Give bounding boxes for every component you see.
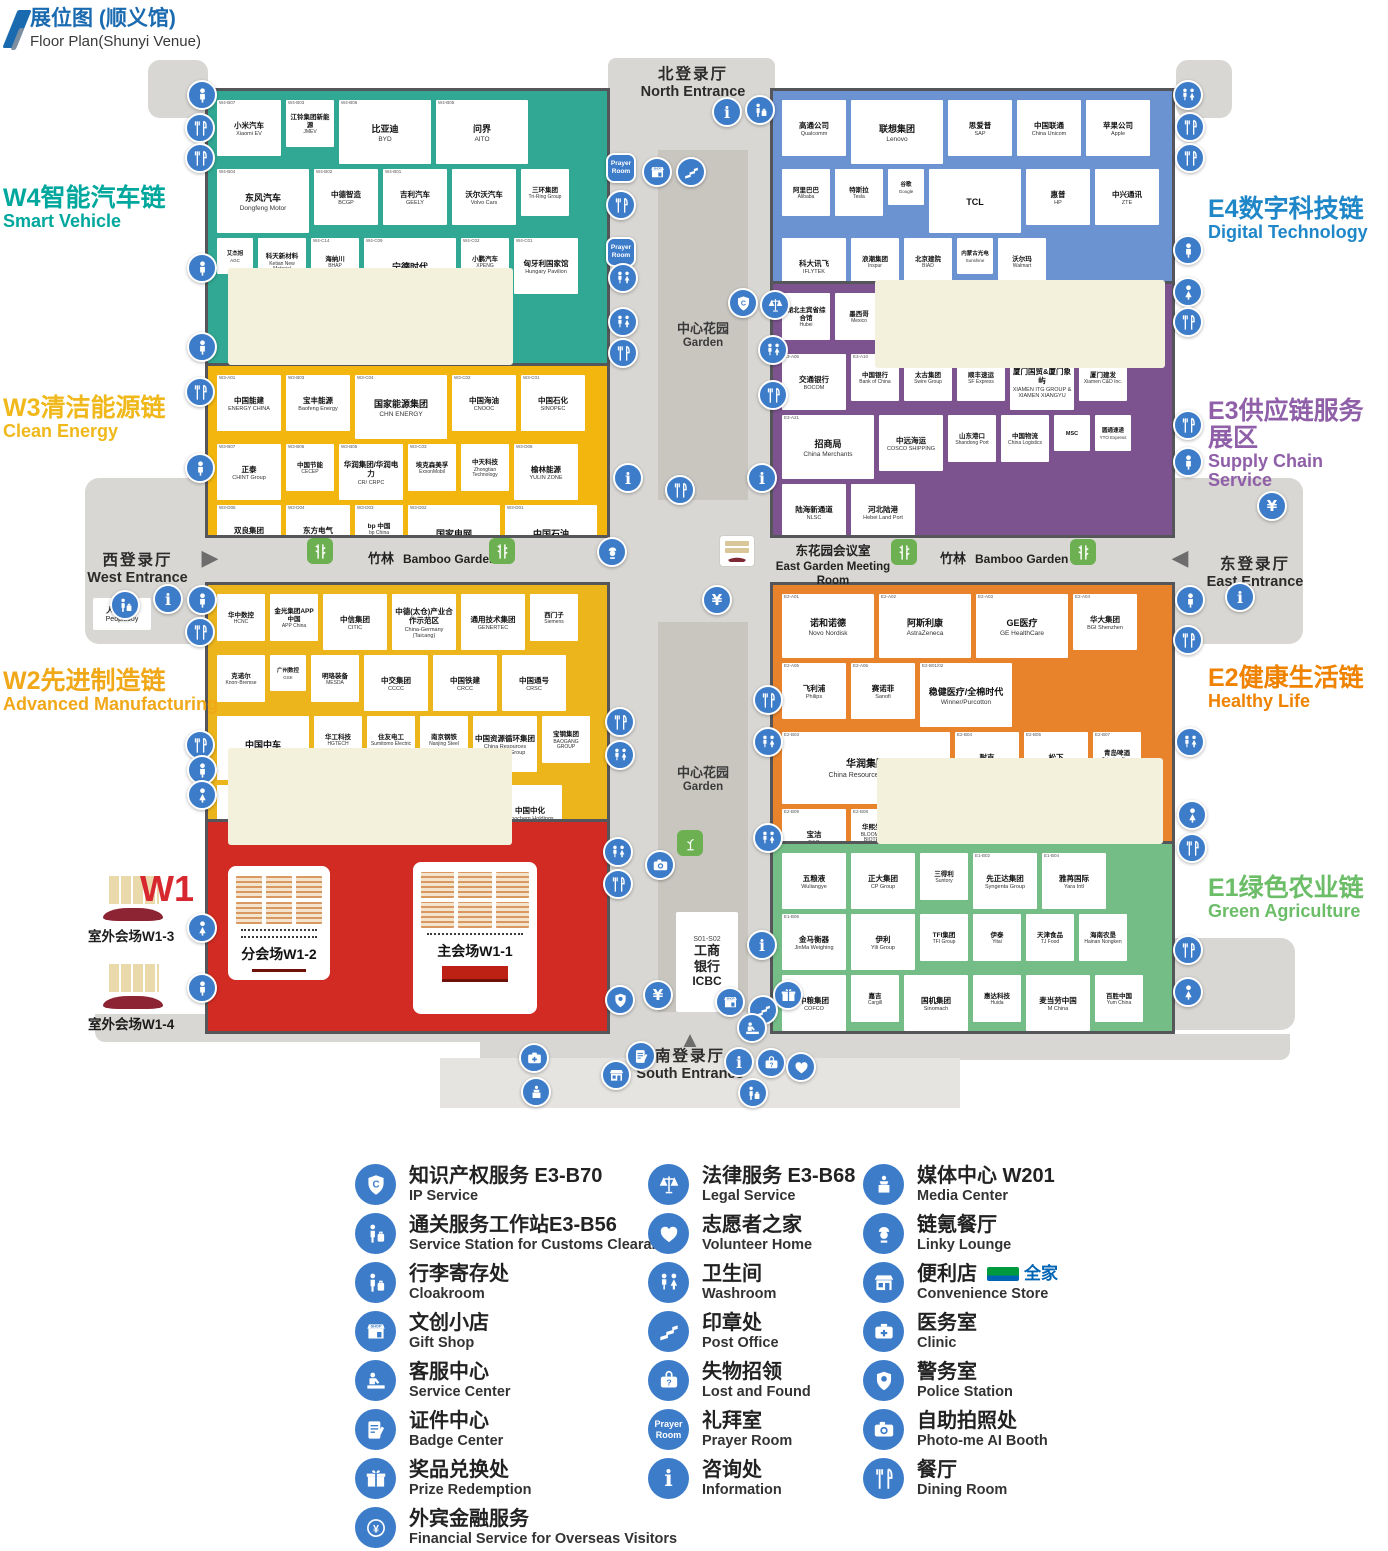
- legend-item-clinic: 医务室Clinic: [863, 1307, 1058, 1356]
- booth-e2-b09: E2-B09宝洁P&G: [782, 809, 846, 844]
- tree-icon: [891, 539, 917, 565]
- legend-item-camera: 自助拍照处Photo-me AI Booth: [863, 1405, 1058, 1454]
- booth-w3-d05: W3-D05双良集团Shuangliang: [217, 505, 281, 538]
- booth-w3-c02: W3-C02中国海油CNOOC: [452, 375, 516, 431]
- booth-iflytek: 科大讯飞IFLYTEK: [782, 238, 846, 284]
- info-icon: i: [613, 463, 643, 493]
- yen-icon: ¥: [702, 585, 732, 615]
- info-icon: i: [747, 463, 777, 493]
- zone-label-e2: E2健康生活链Healthy Life: [1208, 665, 1364, 711]
- booth-yili-group: 伊利Yili Group: [851, 914, 915, 970]
- booth-cp-group: 正大集团CP Group: [851, 853, 915, 909]
- info-icon: i: [724, 1047, 754, 1077]
- booth-w4-b03: W4-B03江铃集团新能源JMEV: [286, 100, 334, 147]
- woman-icon: [187, 913, 217, 943]
- cloakroom-icon: [738, 1078, 768, 1108]
- zone-label-e3: E3供应链服务展区Supply Chain Service: [1208, 398, 1388, 491]
- booth-e2-a01: E2-A01诺和诺德Novo Nordisk: [782, 594, 874, 658]
- garden-label-south: 中心花园Garden: [658, 762, 748, 793]
- arrow-right-icon: ▶: [195, 543, 225, 573]
- washroom-icon: [608, 263, 638, 293]
- zone-label-w3: W3清洁能源链Clean Energy: [3, 395, 166, 441]
- info-icon: i: [747, 930, 777, 960]
- booth-hebei-land-port: 河北陆港Hebei Land Port: [851, 484, 915, 538]
- person-icon: [187, 973, 217, 1003]
- booth-w4-b04: W4-B04东风汽车Dongfeng Motor: [217, 169, 309, 233]
- service-icon: [737, 1013, 767, 1043]
- bush-icon: [677, 830, 703, 856]
- linky-icon: [863, 1213, 904, 1254]
- booth-baogang-group: 宝钢集团BAOGANG GROUP: [542, 716, 590, 763]
- clinic-icon: [519, 1043, 549, 1073]
- dining-icon: [753, 685, 783, 715]
- zone-label-w2: W2先进制造链Advanced Manufacturing: [3, 668, 218, 714]
- arrow-left-icon: ◀: [1165, 543, 1195, 573]
- booth-e3-a06: E3-A06交通银行BOCOM: [782, 354, 846, 410]
- meeting-block-w2: [228, 748, 512, 845]
- person-icon: [187, 253, 217, 283]
- outdoor-awning-icon: [103, 996, 163, 1009]
- booth-yto-express: 圆通速递YTO Express: [1095, 415, 1131, 451]
- legend-item-media: 媒体中心 W201Media Center: [863, 1160, 1058, 1209]
- booth-e2-a06: E2-A06赛诺菲Sanofi: [851, 663, 915, 719]
- familymart-logo: 全家: [987, 1264, 1058, 1284]
- booth-w4-b02: W4-B02中德智造BCGP: [314, 169, 378, 225]
- page-title: 展位图 (顺义馆): [30, 6, 201, 31]
- legend-item-service: 客服中心Service Center: [355, 1356, 677, 1405]
- booth-huida: 惠达科技Huida: [973, 975, 1021, 1022]
- post-icon: [648, 1311, 689, 1352]
- legend-item-dining: 餐厅Dining Room: [863, 1454, 1058, 1503]
- east-entrance-label: 东登录厅East Entrance: [1170, 552, 1340, 590]
- booth-sunshine: 内蒙古光电Sunshine: [957, 238, 993, 274]
- booth-yum-china: 百胜中国Yum China: [1095, 975, 1143, 1022]
- dining-icon: [185, 143, 215, 173]
- main-venue-w1-1: 主会场W1-1: [413, 862, 537, 1014]
- media-icon: [521, 1077, 551, 1107]
- booth-w3-d06: W3-D06榆林能源YULIN ZONE: [514, 444, 578, 500]
- booth-china-germany-taicang-: 中德(太仓)产业合作示范区China-Germany (Taicang): [392, 594, 456, 650]
- dining-icon: [1173, 625, 1203, 655]
- page-header: 展位图 (顺义馆) Floor Plan(Shunyi Venue): [10, 6, 201, 50]
- washroom-icon: [753, 727, 783, 757]
- shop-icon: SHOP: [642, 157, 672, 187]
- legend-item-lost: ?失物招领Lost and Found: [648, 1356, 855, 1405]
- washroom-icon: [608, 307, 638, 337]
- booth-apple: 苹果公司Apple: [1086, 100, 1150, 156]
- lost-icon: ?: [756, 1048, 786, 1078]
- booth-w4-b01: W4-B01吉利汽车GEELY: [383, 169, 447, 225]
- booth-cccc: 中交集团CCCC: [364, 655, 428, 711]
- east-garden-meeting-room-label: 东花园会议室East Garden Meeting Room: [758, 544, 908, 588]
- legend-item-badge: 证件中心Badge Center: [355, 1405, 677, 1454]
- dining-icon: [1173, 307, 1203, 337]
- outdoor-awning-icon: [103, 908, 163, 921]
- dining-icon: [608, 338, 638, 368]
- booth-tri-ring-group: 三环集团Tri-Ring Group: [521, 169, 569, 216]
- booth-china-logistics: 中国物流China Logistics: [1001, 415, 1049, 462]
- booth-sinomach: 国机集团Sinomach: [904, 975, 968, 1031]
- info-icon: i: [153, 584, 183, 614]
- police-icon: [605, 985, 635, 1015]
- svg-text:C: C: [372, 1179, 379, 1190]
- seat-grid: [236, 876, 322, 924]
- prize-icon: [355, 1458, 396, 1499]
- shop-icon: SHOP: [355, 1311, 396, 1352]
- clinic-icon: [863, 1311, 904, 1352]
- sub-venue-w1-2: 分会场W1-2: [228, 866, 330, 980]
- washroom-icon: [605, 740, 635, 770]
- booth-genertec: 通用技术集团GENERTEC: [461, 594, 525, 650]
- meeting-block-e2: [877, 758, 1163, 844]
- booth-citic: 中信集团CITIC: [323, 594, 387, 650]
- booth-china-unicom: 中国联通China Unicom: [1017, 100, 1081, 156]
- post-icon: [676, 157, 706, 187]
- woman-icon: [1173, 277, 1203, 307]
- washroom-icon: [1173, 80, 1203, 110]
- cloakroom-icon: [110, 590, 140, 620]
- booth-e1-b04: E1-B04雅苒国际Yara Intl: [1042, 853, 1106, 909]
- booth-cosco-shipping: 中远海运COSCO SHIPPING: [879, 415, 943, 471]
- booth-e2-a03: E2-A03GE医疗GE HealthCare: [976, 594, 1068, 658]
- volunteer-icon: [786, 1052, 816, 1082]
- booth-w4-c01: W4-C01匈牙利国家馆Hungary Pavilion: [514, 238, 578, 294]
- svg-text:¥: ¥: [372, 1523, 378, 1535]
- booth-e3-a21: E3-A21招商局China Merchants: [782, 415, 874, 479]
- meeting-block-w4: [228, 268, 513, 365]
- legend-item-customs: 通关服务工作站E3-B56Service Station for Customs…: [355, 1209, 677, 1258]
- customs-icon: [355, 1213, 396, 1254]
- arrow-up-icon: ▲: [675, 1025, 705, 1055]
- bamboo-garden-label-west: 竹林Bamboo Garden: [368, 548, 496, 567]
- booth-gsk: 广州数控GSK: [270, 655, 306, 691]
- booth-e2-a02: E2-A02阿斯利康AstraZeneca: [879, 594, 971, 658]
- legend-column-2: 法律服务 E3-B68Legal Service志愿者之家Volunteer H…: [648, 1160, 855, 1503]
- linky-icon: [597, 537, 627, 567]
- booth-w3-c01: W3-C01中国石化SINOPEC: [521, 375, 585, 431]
- stage: [442, 966, 509, 982]
- svg-text:SHOP: SHOP: [370, 1323, 381, 1328]
- dining-icon: [185, 617, 215, 647]
- convenience-icon: [601, 1060, 631, 1090]
- booth-biad: 北京建院BIAD: [904, 238, 952, 284]
- booth-zhongtian-technology: 中天科技Zhongtian Technology: [461, 444, 509, 491]
- outdoor-tables-icon: [108, 963, 160, 993]
- booth-volvo-cars: 沃尔沃汽车Volvo Cars: [452, 169, 516, 225]
- hall-e4: 高通公司Qualcomm联想集团Lenovo思爱普SAP中国联通China Un…: [770, 88, 1175, 284]
- booth-wuliangye: 五粮液Wuliangye: [782, 853, 846, 909]
- shop-icon: SHOP: [715, 987, 745, 1017]
- booth-tfi-group: TFI集团TFI Group: [920, 914, 968, 961]
- person-icon: [187, 80, 217, 110]
- washroom-icon: [648, 1262, 689, 1303]
- booth-w3-b07: W3-B07正泰CHINT Group: [217, 444, 281, 500]
- stage: [252, 969, 305, 972]
- booth-walmart: 沃尔玛Walmart: [998, 238, 1046, 284]
- yen-icon: ¥: [1257, 491, 1287, 521]
- booth-w3-d04: W3-D04东方电气DEC: [286, 505, 350, 538]
- hall-w3: W3-A01中国能建ENERGY CHINAW3-B03宝丰能源Baofeng …: [205, 366, 610, 538]
- main-venue-label: 主会场W1-1: [437, 941, 512, 961]
- booth-suntory: 三得利Suntory: [920, 853, 968, 900]
- dining-icon: [606, 190, 636, 220]
- booth-w3-d03: W3-D03bp 中国bp China: [355, 505, 403, 538]
- meeting-block-e3: [875, 280, 1165, 368]
- booth-crcc: 中国铁建CRCC: [433, 655, 497, 711]
- svg-text:C: C: [740, 299, 745, 307]
- svg-text:SHOP: SHOP: [653, 166, 661, 170]
- booth-shandong-port: 山东港口Shandong Port: [948, 415, 996, 462]
- booth-sap: 思爱普SAP: [948, 100, 1012, 156]
- person-icon: [1173, 447, 1203, 477]
- booth-tcl: TCL: [929, 169, 1021, 233]
- woman-icon: [187, 780, 217, 810]
- washroom-icon: [753, 823, 783, 853]
- booth-inspur: 浪潮集团Inspur: [851, 238, 899, 284]
- booth-lenovo: 联想集团Lenovo: [851, 100, 943, 164]
- booth-w3-b03: W3-B03宝丰能源Baofeng Energy: [286, 375, 350, 431]
- dining-icon: [185, 113, 215, 143]
- booth-knorr-bremse: 克诺尔Knorr-Bremse: [217, 655, 265, 702]
- dining-icon: [185, 377, 215, 407]
- badge-icon: [626, 1041, 656, 1071]
- dining-icon: [1173, 410, 1203, 440]
- washroom-icon: [758, 335, 788, 365]
- legend-item-shop: SHOP文创小店Gift Shop: [355, 1307, 677, 1356]
- north-entrance-label: 北登录厅North Entrance: [613, 62, 773, 100]
- person-icon: [187, 585, 217, 615]
- legend-item-washroom: 卫生间Washroom: [648, 1258, 855, 1307]
- badge-icon: [355, 1409, 396, 1450]
- booth-zte: 中兴通讯ZTE: [1095, 169, 1159, 225]
- dining-icon: [758, 380, 788, 410]
- seat-grid: [421, 872, 529, 928]
- booth-nlsc: 陆海新通道NLSC: [782, 484, 846, 538]
- booth-msc: MSC: [1054, 415, 1090, 451]
- person-icon: [187, 332, 217, 362]
- yen-icon: ¥: [643, 980, 673, 1010]
- legend-item-convenience: 便利店全家Convenience Store: [863, 1258, 1058, 1307]
- ip-icon: C: [728, 288, 758, 318]
- legal-icon: [760, 290, 790, 320]
- booth-app-china: 金光集团APP中国APP China: [270, 594, 318, 641]
- camera-icon: [863, 1409, 904, 1450]
- booth-siemens: 西门子Siemens: [530, 594, 578, 641]
- zone-label-w4: W4智能汽车链Smart Vehicle: [3, 185, 166, 231]
- service-icon: [355, 1360, 396, 1401]
- dining-icon: [1175, 112, 1205, 142]
- page-subtitle: Floor Plan(Shunyi Venue): [30, 33, 201, 50]
- woman-icon: [1177, 800, 1207, 830]
- svg-text:?: ?: [769, 1061, 773, 1068]
- booth-e2-b01-02: E2-B01/02稳健医疗/全棉时代Winner/Purcotton: [920, 663, 1012, 727]
- legend-item-prayer: PrayerRoom礼拜室Prayer Room: [648, 1405, 855, 1454]
- volunteer-icon: [648, 1213, 689, 1254]
- booth-crsc: 中国通号CRSC: [502, 655, 566, 711]
- legend-item-police: 警务室Police Station: [863, 1356, 1058, 1405]
- dining-icon: [603, 869, 633, 899]
- cloakroom-icon: [355, 1262, 396, 1303]
- tree-icon: [307, 538, 333, 564]
- zone-label-e4: E4数字科技链Digital Technology: [1208, 196, 1368, 242]
- booth-mesda: 明珞装备MESDA: [311, 655, 359, 702]
- booth-qualcomm: 高通公司Qualcomm: [782, 100, 846, 156]
- booth-w3-c04: W3-C04国家能源集团CHN ENERGY: [355, 375, 447, 439]
- floor-plan-page: 展位图 (顺义馆) Floor Plan(Shunyi Venue) W4-B0…: [0, 0, 1388, 1551]
- booth-w4-b06: W4-B06比亚迪BYD: [339, 100, 431, 164]
- booth-w4-b07: W4-B07小米汽车Xiaomi EV: [217, 100, 281, 156]
- lost-icon: ?: [648, 1360, 689, 1401]
- legend-item-info: i咨询处Information: [648, 1454, 855, 1503]
- bamboo-garden-label-east: 竹林Bamboo Garden: [940, 548, 1068, 567]
- media-icon: [863, 1164, 904, 1205]
- booth-cargill: 嘉吉Cargill: [851, 975, 899, 1022]
- woman-icon: [1173, 977, 1203, 1007]
- booth-w4-b05: W4-B05问界AITO: [436, 100, 528, 164]
- booth-alibaba: 阿里巴巴Alibaba: [782, 169, 830, 216]
- logo-slash-icon: [10, 6, 20, 50]
- person-icon: [185, 453, 215, 483]
- booth-w3-c03: W3-C03埃克森美孚ExxonMobil: [408, 444, 456, 491]
- booth-hcnc: 华中数控HCNC: [217, 594, 265, 641]
- tree-icon: [1070, 539, 1096, 565]
- dining-icon: [1175, 143, 1205, 173]
- legend-item-volunteer: 志愿者之家Volunteer Home: [648, 1209, 855, 1258]
- person-icon: [1173, 235, 1203, 265]
- dining-icon: [863, 1458, 904, 1499]
- booth-hainan-nongken: 海南农垦Hainan Nongken: [1079, 914, 1127, 961]
- booth-w3-a01: W3-A01中国能建ENERGY CHINA: [217, 375, 281, 431]
- legend-column-1: C知识产权服务 E3-B70IP Service通关服务工作站E3-B56Ser…: [355, 1160, 677, 1551]
- police-icon: [863, 1360, 904, 1401]
- legend-item-legal: 法律服务 E3-B68Legal Service: [648, 1160, 855, 1209]
- legend-item-cloakroom: 行李寄存处Cloakroom: [355, 1258, 677, 1307]
- ip-icon: C: [355, 1164, 396, 1205]
- booth-w3-b05: W3-B05华润集团/华润电力CR/ CRPC: [339, 444, 403, 500]
- sub-venue-label: 分会场W1-2: [241, 944, 316, 964]
- outdoor-venue-w1-4: 室外会场W1-4: [88, 963, 198, 1033]
- booth-w3-d01: W3-D01中国石油CNPC: [505, 505, 597, 538]
- legend-item-linky: 链氪餐厅Linky Lounge: [863, 1209, 1058, 1258]
- booth-google: 谷歌Google: [888, 169, 924, 205]
- info-icon: i: [1225, 582, 1255, 612]
- legend-item-financial: ¥外宾金融服务Financial Service for Overseas Vi…: [355, 1503, 677, 1551]
- convenience-icon: [863, 1262, 904, 1303]
- legend-column-3: 媒体中心 W201Media Center链氪餐厅Linky Lounge便利店…: [863, 1160, 1058, 1503]
- booth-e2-a05: E2-A05飞利浦Philips: [782, 663, 846, 719]
- zone-label-e1: E1绿色农业链Green Agriculture: [1208, 875, 1364, 921]
- booth-m-china: 麦当劳中国M China: [1026, 975, 1090, 1031]
- dining-icon: [605, 707, 635, 737]
- booth-w3-b06: W3-B06中国节能CECEP: [286, 444, 334, 491]
- svg-text:?: ?: [666, 1377, 671, 1387]
- washroom-icon: [1175, 727, 1205, 757]
- booth-e2-a04: E2-A04华大集团BGI Shenzhen: [1073, 594, 1137, 650]
- tree-icon: [489, 538, 515, 564]
- booth-tesla: 特斯拉Tesla: [835, 169, 883, 216]
- dining-icon: [665, 475, 695, 505]
- dining-icon: [1173, 935, 1203, 965]
- zone-label-w1: W1: [140, 870, 194, 909]
- legend-item-post: 印章处Post Office: [648, 1307, 855, 1356]
- financial-icon: ¥: [355, 1507, 396, 1548]
- prayer-icon: PrayerRoom: [648, 1409, 689, 1450]
- garden-label-north: 中心花园Garden: [658, 318, 748, 349]
- bamboo-corridor: [85, 535, 1300, 585]
- info-icon: i: [648, 1458, 689, 1499]
- svg-text:SHOP: SHOP: [726, 996, 734, 1000]
- prayer-icon: PrayerRoom: [606, 153, 636, 183]
- booth-yitai: 伊泰Yitai: [973, 914, 1021, 961]
- legal-icon: [648, 1164, 689, 1205]
- washroom-icon: [603, 837, 633, 867]
- camera-icon: [645, 850, 675, 880]
- cloakroom-icon: [745, 95, 775, 125]
- legend-item-ip: C知识产权服务 E3-B70IP Service: [355, 1160, 677, 1209]
- booth-e1-b02: E1-B02先正达集团Syngenta Group: [973, 853, 1037, 909]
- dining-icon: [1177, 833, 1207, 863]
- booth-w3-d02: W3-D02国家电网STATE GRID: [408, 505, 500, 538]
- booth-hp: 惠普HP: [1026, 169, 1090, 225]
- person-icon: [1175, 585, 1205, 615]
- booth-tj-food: 天津食品TJ Food: [1026, 914, 1074, 961]
- info-icon: i: [712, 97, 742, 127]
- meeting-icon: [719, 535, 755, 567]
- booth-e1-b06: E1-B06金马衡器JinMa Weighing: [782, 914, 846, 970]
- hall-e1: 五粮液Wuliangye正大集团CP Group三得利SuntoryE1-B02…: [770, 844, 1175, 1034]
- legend-item-prize: 奖品兑换处Prize Redemption: [355, 1454, 677, 1503]
